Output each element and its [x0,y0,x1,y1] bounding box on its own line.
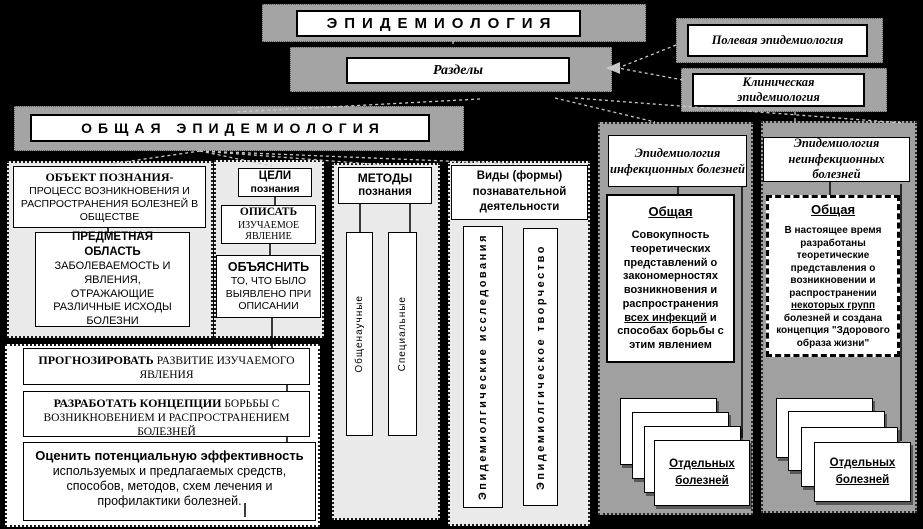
object-title: ОБЪЕКТ ПОЗНАНИЯ- [45,170,173,185]
methods-subtitle: познания [358,186,412,200]
sections-label: Разделы [346,57,570,84]
clinical-epi-box: Клиническая эпидемиология [692,73,865,107]
subject-area-body: ЗАБОЛЕВАЕМОСТЬ И ЯВЛЕНИЯ, ОТРАЖАЮЩИЕ РАЗ… [46,260,179,329]
method-item-general-scientific: Общенаучные [346,232,373,436]
method-item-label: Общенаучные [354,295,365,373]
method-item-label: Специальные [397,296,408,371]
noninfectious-general-body: В настоящее время разработаны теоретичес… [772,225,894,350]
evaluate-box: Оценить потенциальную эффективность испо… [23,442,316,521]
infectious-body-1: Совокупность теоретических представлений… [623,229,719,310]
infectious-general-box: Общая Совокупность теоретических предста… [606,194,735,363]
explain-title: ОБЪЯСНИТЬ [228,260,309,275]
explain-box: ОБЪЯСНИТЬ ТО, ЧТО БЫЛО ВЫЯВЛЕНО ПРИ ОПИС… [216,255,321,318]
general-epi-box: ОБЩАЯ ЭПИДЕМИОЛОГИЯ [30,114,430,142]
form-item-creativity: Эпидемиолгическое творчество [523,228,558,506]
noninfectious-individual-card: Отдельных болезней [814,442,911,502]
diagram-title: ЭПИДЕМИОЛОГИЯ [296,10,581,37]
forms-header-box: Виды (формы) познавательной деятельности [451,165,588,220]
describe-box: ОПИСАТЬ ИЗУЧАЕМОЕ ЯВЛЕНИЕ [221,205,316,244]
subject-area-box: ПРЕДМЕТНАЯ ОБЛАСТЬ ЗАБОЛЕВАЕМОСТЬ И ЯВЛЕ… [35,232,190,327]
object-box: ОБЪЕКТ ПОЗНАНИЯ- ПРОЦЕСС ВОЗНИКНОВЕНИЯ И… [13,166,206,228]
infectious-general-title: Общая [648,204,692,219]
forecast-title: ПРОГНОЗИРОВАТЬ [38,353,156,367]
describe-body: ИЗУЧАЕМОЕ ЯВЛЕНИЕ [222,220,315,243]
develop-box: РАЗРАБОТАТЬ КОНЦЕПЦИИ БОРЬБЫ С ВОЗНИКНОВ… [23,391,310,437]
noninfectious-body-underlined: некоторых групп [791,300,875,311]
noninfectious-header-box: Эпидемиология неинфекционных болезней [763,137,910,182]
explain-body: ТО, ЧТО БЫЛО ВЫЯВЛЕНО ПРИ ОПИСАНИИ [219,275,318,313]
goals-subtitle: познания [251,183,300,195]
evaluate-title: Оценить потенциальную эффективность [35,448,303,463]
noninfectious-general-box: Общая В настоящее время разработаны теор… [766,195,900,357]
form-item-label: Эпидемиолгические исследования [477,233,489,500]
methods-title: МЕТОДЫ [358,171,413,185]
forecast-box: ПРОГНОЗИРОВАТЬ РАЗВИТИЕ ИЗУЧАЕМОГО ЯВЛЕН… [23,348,310,385]
evaluate-body: используемых и предлагаемых средств, спо… [53,464,287,508]
develop-title: РАЗРАБОТАТЬ КОНЦЕПЦИИ [54,396,225,410]
infectious-header-box: Эпидемиология инфекционных болезней [608,135,747,187]
infectious-individual-card: Отдельных болезней [654,440,750,506]
noninfectious-body-2: болезней и создана концепция "Здорового … [776,313,890,349]
field-epi-box: Полевая эпидемиология [687,24,868,57]
forecast-body: РАЗВИТИЕ ИЗУЧАЕМОГО ЯВЛЕНИЯ [139,355,294,381]
epidemiology-diagram: ЭПИДЕМИОЛОГИЯ Разделы Полевая эпидемиоло… [0,0,923,529]
noninfectious-general-title: Общая [811,202,855,217]
describe-title: ОПИСАТЬ [240,206,297,219]
infectious-body-underlined: всех инфекций [624,312,707,324]
noninfectious-body-1: В настоящее время разработаны теоретичес… [785,225,882,299]
forms-title: Виды (формы) познавательной деятельности [456,169,583,216]
form-item-research: Эпидемиолгические исследования [463,226,503,508]
goals-title: ЦЕЛИ [259,170,291,183]
methods-header-box: МЕТОДЫ познания [338,167,432,204]
method-item-special: Специальные [388,232,417,436]
goals-header-box: ЦЕЛИ познания [238,168,312,197]
subject-area-title: ПРЕДМЕТНАЯ ОБЛАСТЬ [46,230,179,260]
object-body: ПРОЦЕСС ВОЗНИКНОВЕНИЯ И РАСПРОСТРАНЕНИЯ … [16,185,203,224]
form-item-label: Эпидемиолгическое творчество [535,244,547,490]
infectious-general-body: Совокупность теоретических представлений… [611,229,730,353]
